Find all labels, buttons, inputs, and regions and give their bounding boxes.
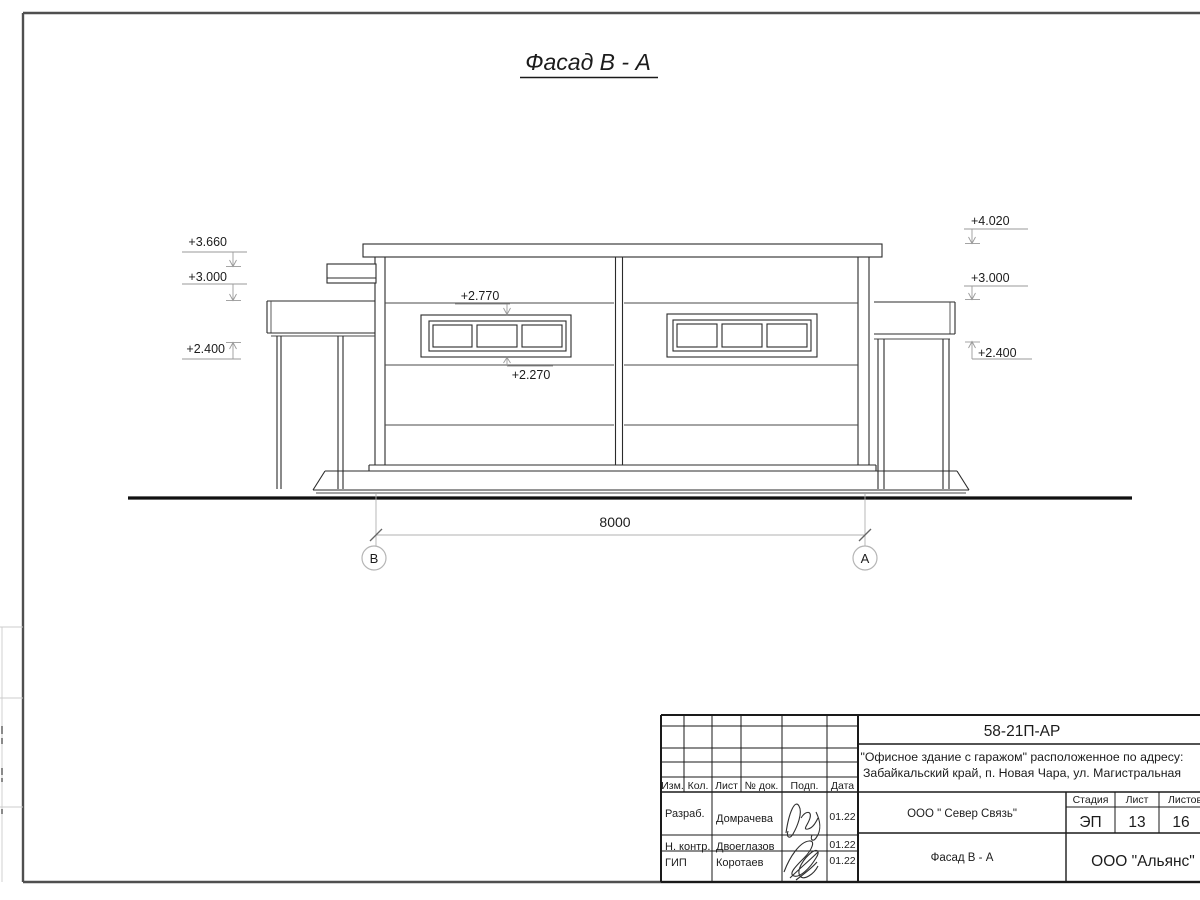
left-canopy bbox=[267, 301, 375, 489]
elevation-mark-right-2400: +2.400 bbox=[965, 342, 1032, 361]
main-walls bbox=[369, 257, 876, 471]
row-gip-name: Коротаев bbox=[716, 857, 764, 869]
window-right bbox=[667, 314, 817, 357]
mark-2770-text: +2.770 bbox=[461, 289, 500, 303]
axis-circle-b: В bbox=[362, 546, 386, 570]
dimension-8000: 8000 bbox=[370, 494, 871, 546]
plinth bbox=[313, 471, 969, 493]
elevation-drawing-canvas: Фасад В - А bbox=[0, 0, 1200, 900]
col-kol: Кол. bbox=[688, 780, 709, 792]
page-title: Фасад В - А bbox=[520, 49, 658, 78]
sheets-value: 16 bbox=[1172, 814, 1189, 831]
axis-b-label: В bbox=[370, 551, 379, 566]
mark-r2400-text: +2.400 bbox=[978, 346, 1017, 360]
axis-circle-a: А bbox=[853, 546, 877, 570]
row-razrab-name: Домрачева bbox=[716, 813, 774, 825]
drawing-name: Фасад В - А bbox=[931, 852, 994, 864]
row-razrab-role: Разраб. bbox=[665, 808, 705, 820]
stage-label: Стадия bbox=[1073, 794, 1109, 806]
elevation-mark-left-3000: +3.000 bbox=[182, 270, 247, 301]
axis-a-label: А bbox=[861, 551, 870, 566]
col-izm: Изм. bbox=[661, 780, 684, 792]
page-title-text: Фасад В - А bbox=[525, 49, 651, 75]
window-left bbox=[421, 315, 571, 357]
elevation-mark-left-3660: +3.660 bbox=[182, 235, 247, 267]
title-block: Изм. Кол. Лист № док. Подп. Дата Разраб.… bbox=[661, 715, 1200, 882]
elevation-mark-left-2400: +2.400 bbox=[182, 342, 241, 359]
doc-number: 58-21П-АР bbox=[984, 723, 1061, 740]
col-podp: Подп. bbox=[791, 780, 819, 792]
vent-box bbox=[327, 264, 376, 283]
elevation-mark-window-bottom: +2.270 bbox=[504, 358, 554, 383]
parapet bbox=[363, 244, 882, 257]
project-address-line1: "Офисное здание с гаражом" расположенное… bbox=[861, 750, 1184, 764]
drawing-sheet: Фасад В - А bbox=[0, 0, 1200, 900]
mark-4020-text: +4.020 bbox=[971, 214, 1010, 228]
organization-name: ООО "Альянс" bbox=[1091, 853, 1195, 870]
side-stamp-strip bbox=[0, 627, 23, 882]
sheets-label: Листов bbox=[1168, 794, 1200, 806]
row-nkontr-role: Н. контр. bbox=[665, 841, 710, 853]
sheet-value: 13 bbox=[1128, 814, 1145, 831]
project-address-line2: Забайкальский край, п. Новая Чара, ул. М… bbox=[863, 766, 1181, 780]
right-canopy bbox=[874, 302, 955, 489]
row-gip-role: ГИП bbox=[665, 857, 687, 869]
elevation-mark-window-top: +2.770 bbox=[455, 289, 511, 315]
elevation-mark-right-4020: +4.020 bbox=[964, 214, 1028, 244]
mark-r3000-text: +3.000 bbox=[971, 271, 1010, 285]
row-nkontr-date: 01.22 bbox=[829, 839, 855, 851]
mark-l2400-text: +2.400 bbox=[186, 342, 225, 356]
dimension-text: 8000 bbox=[599, 514, 630, 530]
col-doc: № док. bbox=[745, 780, 779, 792]
row-gip-date: 01.22 bbox=[829, 855, 855, 867]
row-nkontr-name: Двоеглазов bbox=[716, 841, 775, 853]
row-razrab-date: 01.22 bbox=[829, 811, 855, 823]
contractor-name: ООО " Север Связь" bbox=[907, 808, 1017, 820]
mark-l3000-text: +3.000 bbox=[188, 270, 227, 284]
stage-value: ЭП bbox=[1079, 814, 1101, 831]
mark-2270-text: +2.270 bbox=[512, 368, 551, 382]
mark-3660-text: +3.660 bbox=[188, 235, 227, 249]
sheet-label: Лист bbox=[1126, 794, 1149, 806]
col-data: Дата bbox=[831, 780, 854, 792]
signature-gip-icon bbox=[784, 841, 818, 880]
elevation-mark-right-3000: +3.000 bbox=[964, 271, 1028, 300]
col-list: Лист bbox=[715, 780, 738, 792]
